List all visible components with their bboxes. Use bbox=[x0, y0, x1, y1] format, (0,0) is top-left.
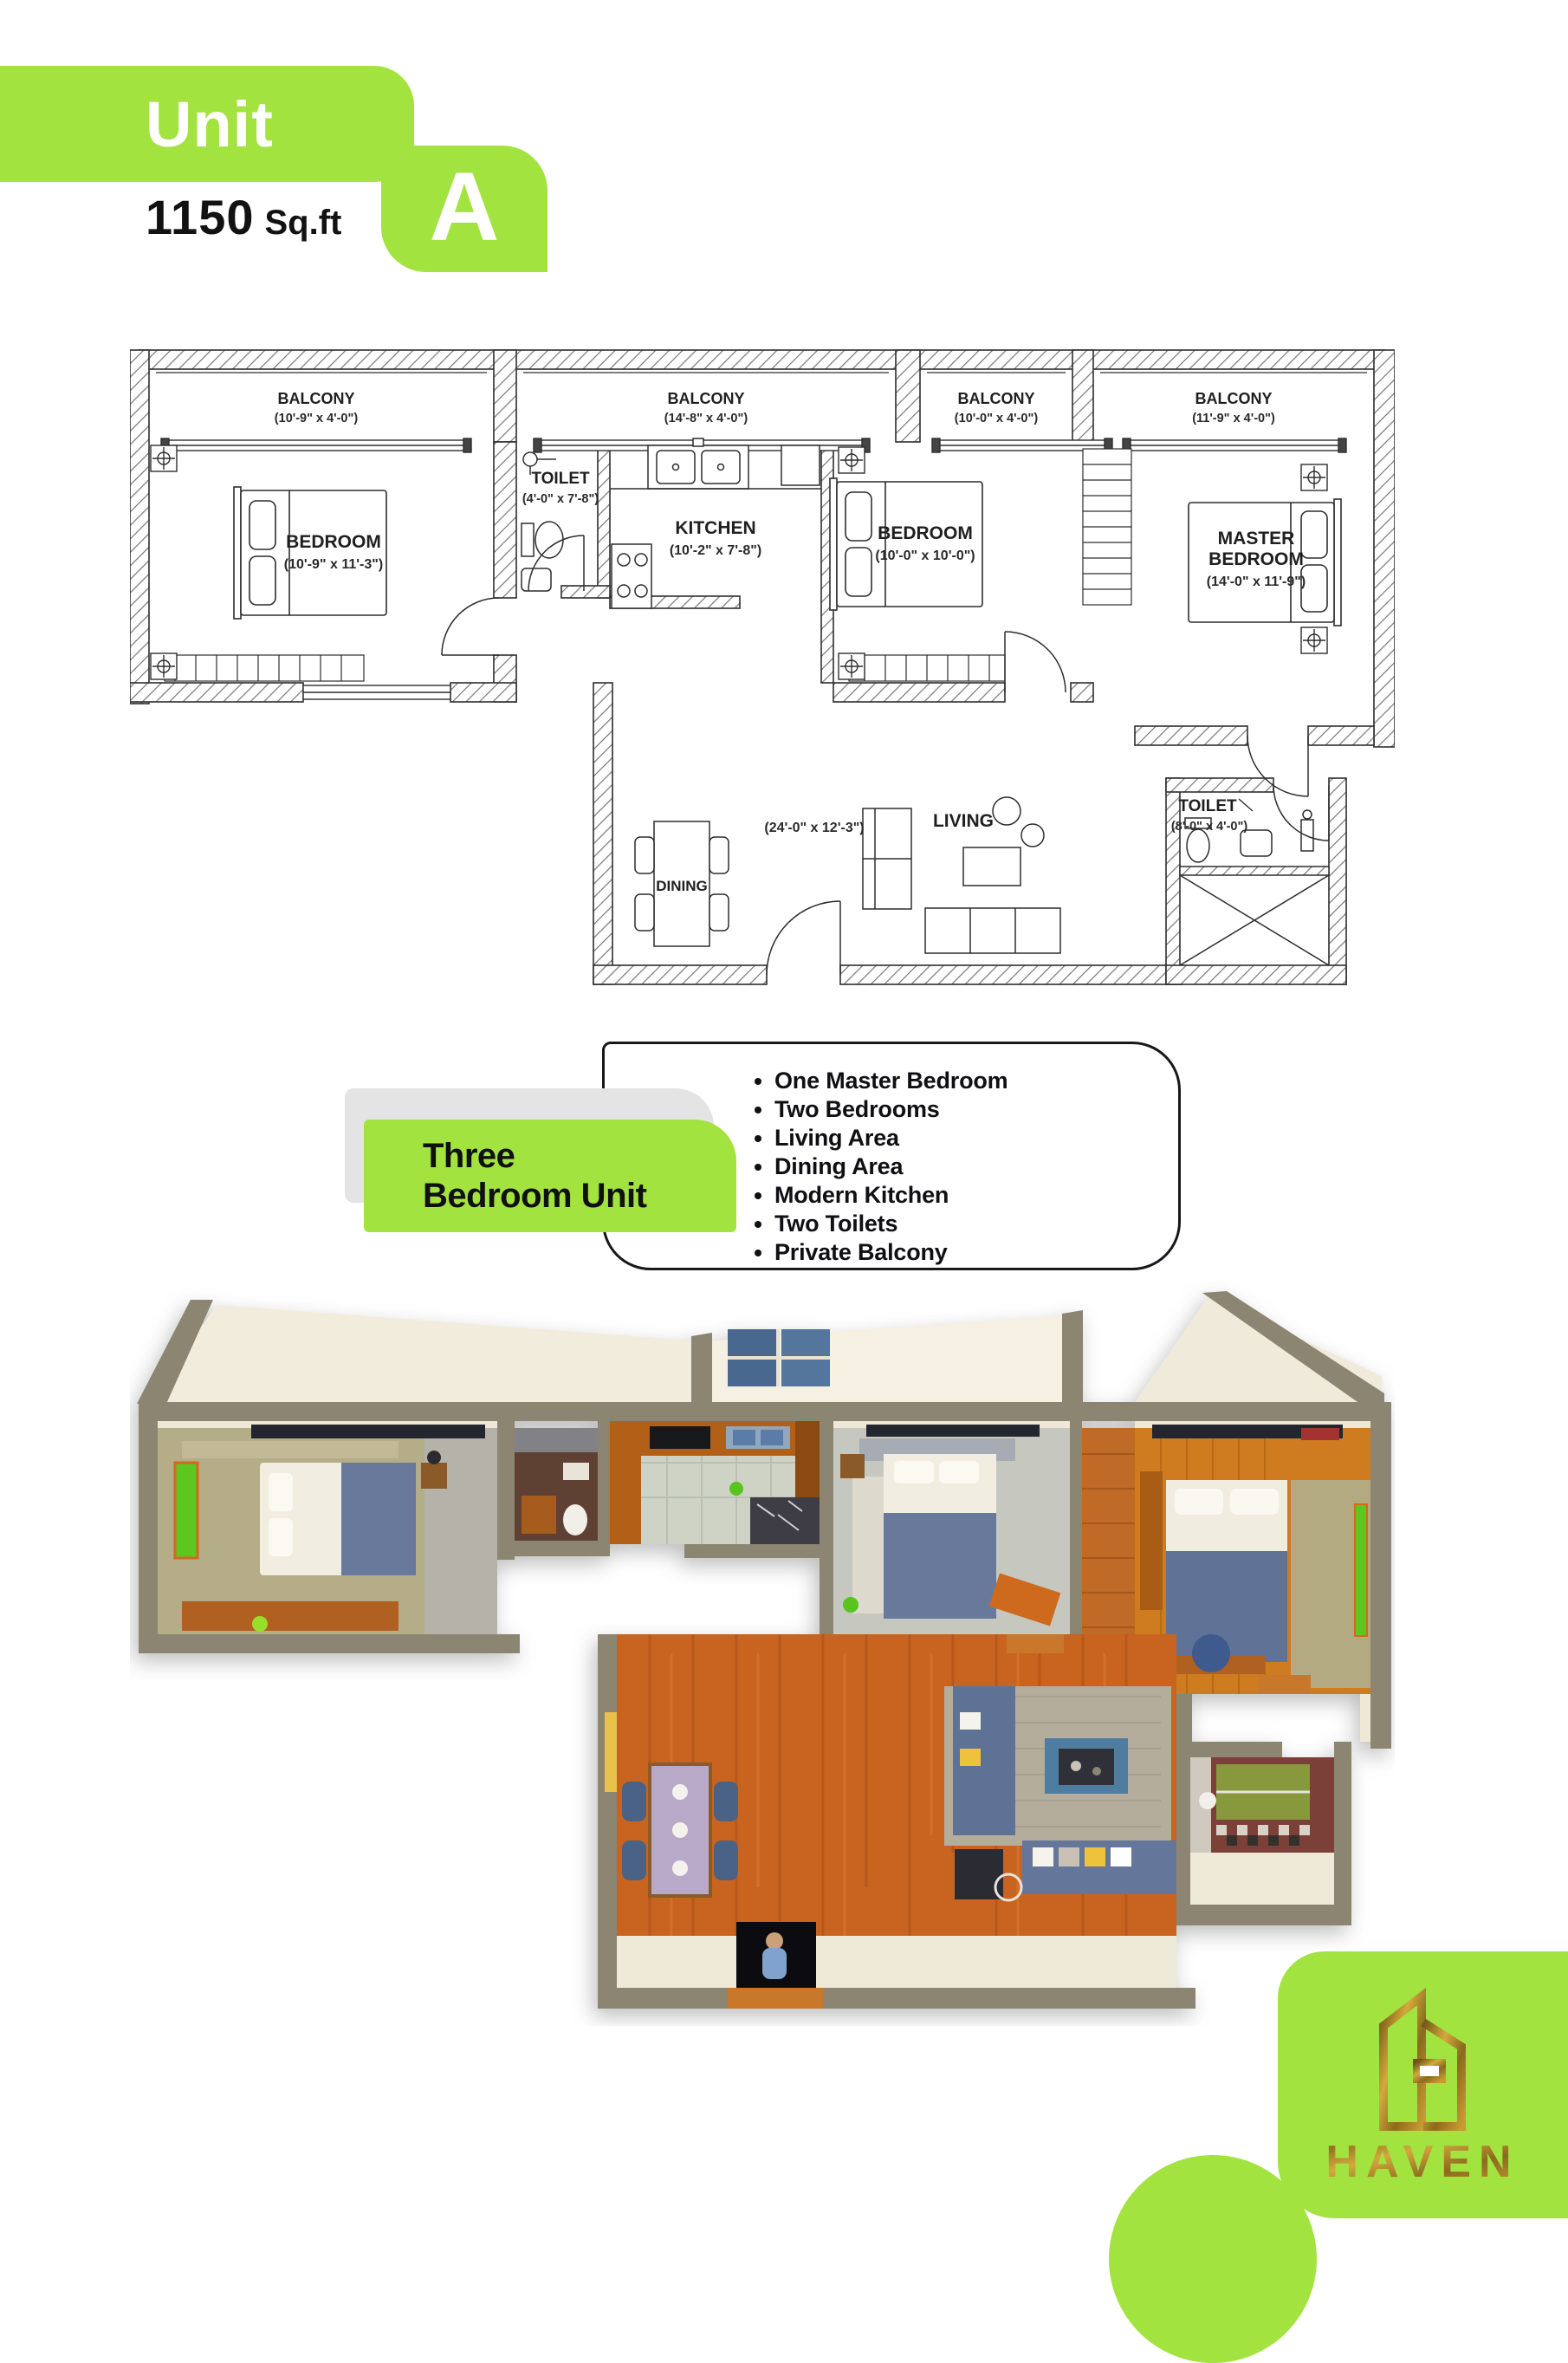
unit-banner: Unit bbox=[0, 66, 414, 182]
svg-text:TOILET: TOILET bbox=[1178, 797, 1237, 815]
feature-item: Dining Area bbox=[774, 1152, 1178, 1181]
feature-item: Modern Kitchen bbox=[774, 1181, 1178, 1210]
svg-text:BALCONY: BALCONY bbox=[958, 390, 1035, 407]
svg-text:DINING: DINING bbox=[656, 878, 708, 894]
svg-text:(14'-0" x 11'-9"): (14'-0" x 11'-9") bbox=[1207, 575, 1306, 589]
svg-text:BALCONY: BALCONY bbox=[668, 390, 745, 407]
svg-text:BEDROOM: BEDROOM bbox=[1208, 549, 1304, 569]
svg-text:(24'-0" x 12'-3"): (24'-0" x 12'-3") bbox=[764, 821, 864, 835]
feature-item: Two Bedrooms bbox=[774, 1095, 1178, 1124]
unit-type-label: Three Bedroom Unit bbox=[364, 1120, 736, 1232]
unit-letter: A bbox=[430, 159, 500, 256]
render-toilet-1 bbox=[515, 1428, 598, 1541]
svg-text:BEDROOM: BEDROOM bbox=[878, 523, 973, 543]
svg-text:KITCHEN: KITCHEN bbox=[675, 518, 755, 538]
floor-plan-3d-render bbox=[130, 1281, 1395, 2026]
feature-item: One Master Bedroom bbox=[774, 1067, 1178, 1095]
svg-text:BEDROOM: BEDROOM bbox=[286, 532, 381, 552]
render-bedroom-2 bbox=[833, 1425, 1070, 1634]
svg-text:(10'-9" x 11'-3"): (10'-9" x 11'-3") bbox=[284, 557, 383, 572]
svg-text:MASTER: MASTER bbox=[1218, 529, 1295, 549]
svg-text:(11'-9" x 4'-0"): (11'-9" x 4'-0") bbox=[1192, 412, 1275, 425]
bed-symbol bbox=[234, 487, 386, 619]
svg-text:(10'-2" x 7'-8"): (10'-2" x 7'-8") bbox=[670, 543, 761, 558]
plan-label-balcony-3: BALCONY (10'-0" x 4'-0") bbox=[955, 390, 1039, 425]
plan-label-toilet-2: TOILET (8'-0" x 4'-0") bbox=[1171, 797, 1253, 834]
render-toilet-2 bbox=[1190, 1757, 1334, 1905]
haven-wordmark: HAVEN bbox=[1325, 2137, 1519, 2187]
unit-type-line2: Bedroom Unit bbox=[423, 1176, 736, 1216]
render-corridor bbox=[1082, 1428, 1135, 1653]
svg-text:(4'-0" x 7'-8"): (4'-0" x 7'-8") bbox=[522, 492, 599, 506]
plan-label-master-bedroom: MASTER BEDROOM (14'-0" x 11'-9") bbox=[1207, 529, 1306, 589]
svg-text:LIVING: LIVING bbox=[933, 811, 994, 831]
svg-text:(10'-9" x 4'-0"): (10'-9" x 4'-0") bbox=[275, 412, 359, 425]
svg-text:BALCONY: BALCONY bbox=[278, 390, 355, 407]
brand-corner: HAVEN bbox=[1278, 1951, 1568, 2218]
unit-type-line1: Three bbox=[423, 1136, 736, 1176]
plan-label-toilet-1: TOILET (4'-0" x 7'-8") bbox=[522, 470, 599, 506]
svg-text:(14'-8" x 4'-0"): (14'-8" x 4'-0") bbox=[664, 412, 748, 425]
render-upper-walls bbox=[137, 1291, 1384, 1404]
plan-label-balcony-2: BALCONY (14'-8" x 4'-0") bbox=[664, 390, 748, 425]
render-bedroom-1 bbox=[158, 1425, 497, 1634]
plan-label-balcony-1: BALCONY (10'-9" x 4'-0") bbox=[275, 390, 359, 425]
render-kitchen bbox=[610, 1421, 820, 1544]
svg-text:(8'-0" x 4'-0"): (8'-0" x 4'-0") bbox=[1171, 820, 1248, 834]
haven-logo: HAVEN bbox=[1278, 1972, 1568, 2206]
feature-item: Living Area bbox=[774, 1124, 1178, 1152]
svg-text:(10'-0" x 10'-0"): (10'-0" x 10'-0") bbox=[875, 549, 975, 563]
unit-area-unit: Sq.ft bbox=[265, 204, 342, 242]
bed-symbol bbox=[830, 478, 982, 610]
plan-label-dining: DINING bbox=[656, 878, 708, 894]
unit-area: 1150Sq.ft bbox=[146, 189, 341, 245]
unit-area-value: 1150 bbox=[146, 190, 255, 244]
floor-plan-2d: BALCONY (10'-9" x 4'-0") BALCONY (14'-8"… bbox=[130, 336, 1395, 1021]
feature-item: Private Balcony bbox=[774, 1238, 1178, 1267]
plan-label-balcony-4: BALCONY (11'-9" x 4'-0") bbox=[1192, 390, 1275, 425]
svg-text:(10'-0" x 4'-0"): (10'-0" x 4'-0") bbox=[955, 412, 1039, 425]
plan-label-kitchen: KITCHEN (10'-2" x 7'-8") bbox=[670, 518, 761, 558]
svg-text:TOILET: TOILET bbox=[531, 470, 590, 488]
haven-building-icon bbox=[1383, 1996, 1461, 2126]
unit-letter-badge: A bbox=[381, 146, 548, 272]
unit-banner-label: Unit bbox=[146, 88, 274, 161]
plan-beds bbox=[234, 478, 1341, 626]
render-living-dining bbox=[605, 1634, 1176, 1988]
svg-text:BALCONY: BALCONY bbox=[1195, 390, 1273, 407]
feature-item: Two Toilets bbox=[774, 1210, 1178, 1238]
